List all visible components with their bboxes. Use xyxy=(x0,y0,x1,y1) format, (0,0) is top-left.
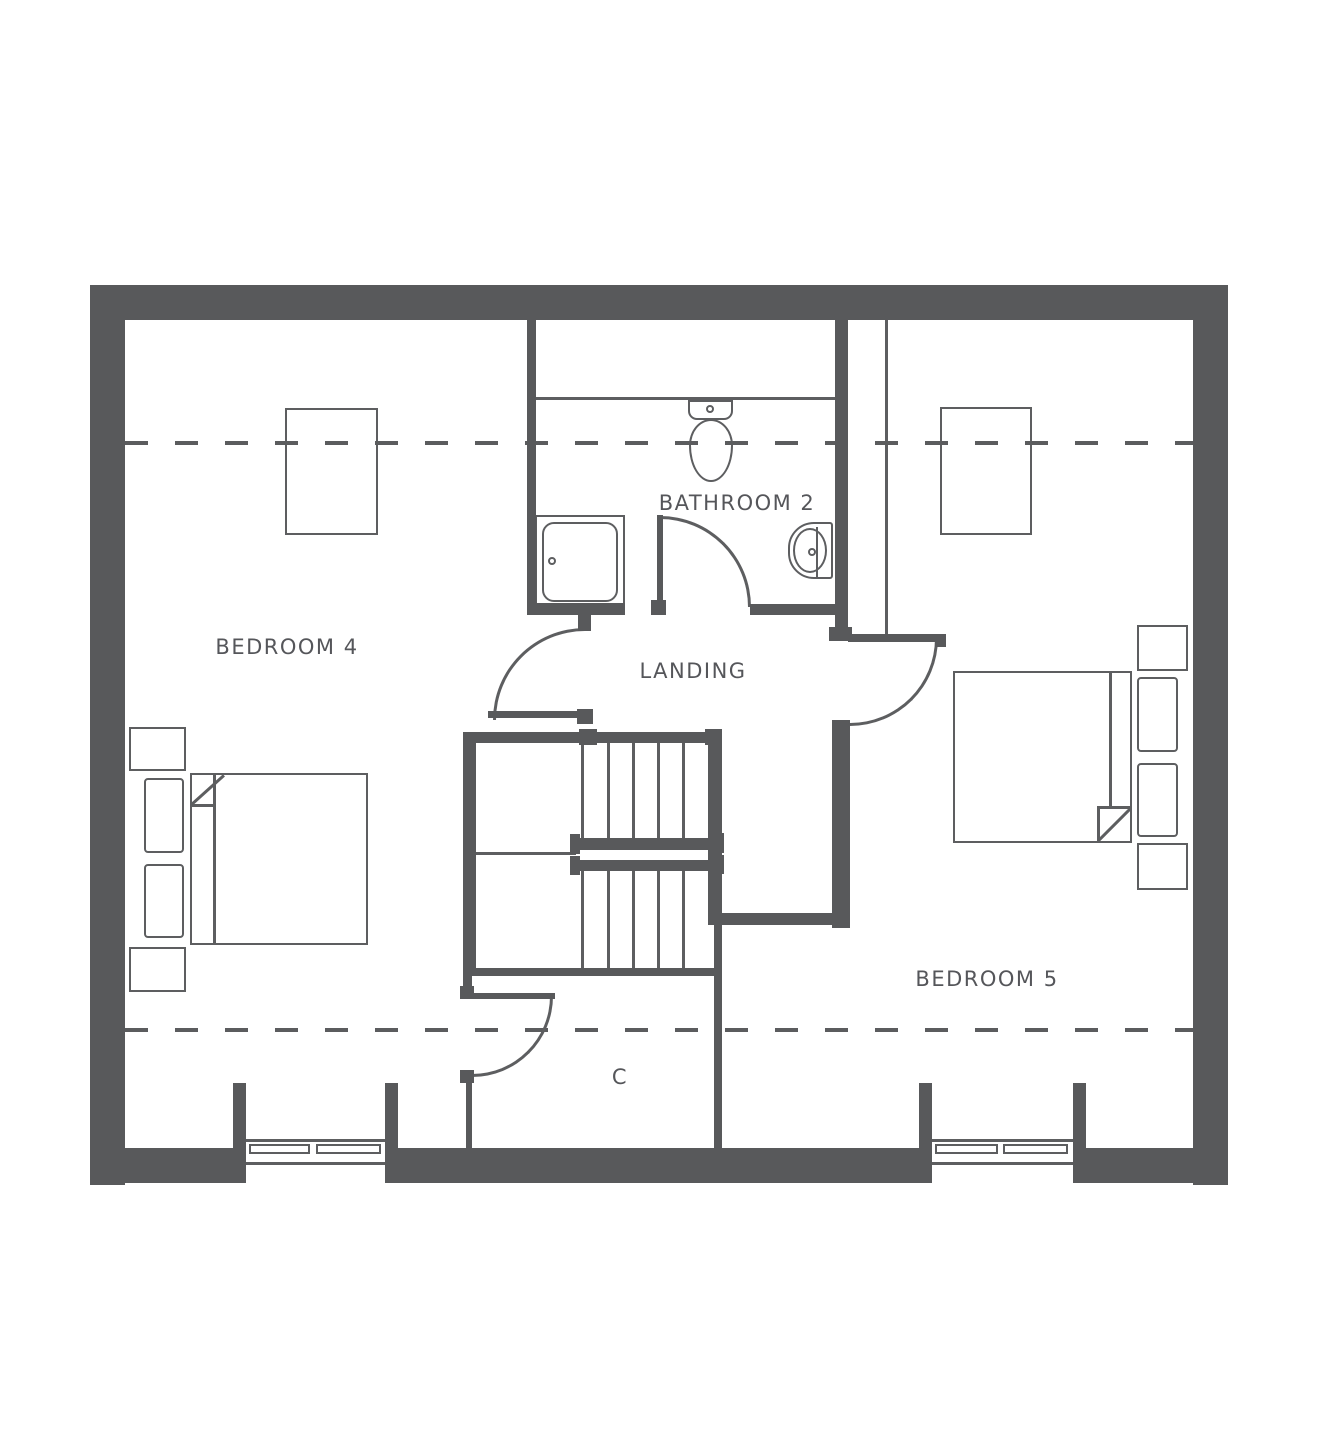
bed-bedroom5 xyxy=(953,671,1132,843)
stair-tread-line xyxy=(682,743,685,838)
stair-tread-line xyxy=(581,743,584,838)
stair-wall-left xyxy=(463,732,476,975)
shower-drain xyxy=(548,557,556,565)
bedroom5-recess-line xyxy=(885,320,888,638)
window-bedroom5-pane xyxy=(935,1144,998,1154)
bedroom4-door-jamb-top xyxy=(578,612,591,631)
window-pier xyxy=(385,1083,398,1149)
bedroom5-door-jamb xyxy=(935,634,946,647)
pillow-bedroom5-top xyxy=(1137,677,1178,752)
bathroom-wall-bottom-left xyxy=(527,603,625,615)
bedroom4-door-hinge-node xyxy=(577,709,593,724)
bed-bedroom5-sheet-line xyxy=(1109,673,1112,808)
stair-wall-node xyxy=(579,729,597,745)
window-bedroom5-pane xyxy=(1003,1144,1068,1154)
stair-wall-right xyxy=(708,732,722,925)
room-label-landing: LANDING xyxy=(639,659,746,683)
window-bedroom5-frame-line xyxy=(932,1139,1073,1142)
door-swing-arc-cupboard xyxy=(472,996,553,1077)
bathroom-fixture-line xyxy=(536,397,835,400)
room-label-bathroom2: BATHROOM 2 xyxy=(659,491,816,515)
stair-wall-bottom xyxy=(463,968,717,976)
stair-rail-cap xyxy=(570,834,580,854)
stair-tread-line xyxy=(632,743,635,838)
stair-center-rail-upper xyxy=(576,838,722,850)
window-pier xyxy=(1073,1083,1086,1149)
bedroom5-door-leaf xyxy=(848,634,940,642)
bed-bedroom4 xyxy=(190,773,368,945)
window-bedroom4-frame-line xyxy=(246,1139,385,1142)
window-bedroom4-pane xyxy=(249,1144,310,1154)
cupboard-door-leaf xyxy=(472,993,555,999)
wardrobe-bedroom5 xyxy=(940,407,1032,535)
nightstand-bedroom4-bottom xyxy=(129,947,186,992)
outer-wall-top xyxy=(90,285,1228,320)
outer-wall-right xyxy=(1193,285,1228,1185)
outer-wall-bottom-right xyxy=(1073,1148,1193,1183)
bedroom5-wall-west xyxy=(832,720,850,928)
eaves-dashed-line-upper xyxy=(125,441,1193,445)
stair-rail-cap xyxy=(570,856,580,875)
bathroom-wall-right xyxy=(835,320,848,630)
bathroom-wall-bottom-right xyxy=(750,604,848,615)
floor-plan: BEDROOM 4 BATHROOM 2 LANDING BEDROOM 5 C xyxy=(0,0,1318,1455)
door-swing-arc-bedroom5 xyxy=(850,638,938,726)
room-label-bedroom4: BEDROOM 4 xyxy=(215,635,358,659)
bed-bedroom5-fold-line-h xyxy=(1097,806,1132,809)
stair-center-rail-lower xyxy=(576,860,722,871)
outer-wall-left xyxy=(90,285,125,1185)
pillow-bedroom4-top xyxy=(144,778,184,853)
stair-tread-line xyxy=(632,871,635,968)
door-swing-arc-bedroom4 xyxy=(493,628,585,720)
pillow-bedroom5-bottom xyxy=(1137,763,1178,837)
cupboard-wall-lower xyxy=(466,1078,472,1148)
window-bedroom4-sill-line xyxy=(246,1162,385,1165)
window-bedroom4-pane xyxy=(316,1144,381,1154)
bathroom-door-leaf xyxy=(657,515,663,603)
outer-wall-bottom-left xyxy=(125,1148,246,1183)
outer-wall-bottom-center xyxy=(385,1148,932,1183)
window-pier xyxy=(233,1083,246,1149)
landing-wall-bottom xyxy=(715,913,848,925)
bathroom-wall-left xyxy=(527,320,536,612)
bed-bedroom4-sheet-line xyxy=(213,775,216,943)
eaves-dashed-line-lower xyxy=(125,1028,1193,1032)
nightstand-bedroom4-top xyxy=(129,727,186,771)
window-bedroom5-sill-line xyxy=(932,1162,1073,1165)
wash-basin-tap xyxy=(808,548,816,556)
toilet-flush-button xyxy=(706,405,714,413)
stair-tread-line xyxy=(581,871,584,968)
toilet-bowl xyxy=(689,419,733,482)
cupboard-wall-right xyxy=(714,925,722,1148)
stair-tread-line xyxy=(657,871,660,968)
wash-basin-edge-line xyxy=(816,527,818,577)
stair-tread-line xyxy=(607,871,610,968)
stair-tread-line xyxy=(682,871,685,968)
stair-half-landing-line xyxy=(476,852,576,855)
door-swing-arc-bathroom2 xyxy=(660,516,751,607)
nightstand-bedroom5-top xyxy=(1137,625,1188,671)
bedroom4-door-leaf xyxy=(488,711,585,718)
stair-tread-line xyxy=(607,743,610,838)
room-label-cupboard: C xyxy=(612,1065,628,1089)
nightstand-bedroom5-bottom xyxy=(1137,843,1188,890)
bed-bedroom4-fold-line xyxy=(190,804,214,807)
window-pier xyxy=(919,1083,932,1149)
room-label-bedroom5: BEDROOM 5 xyxy=(915,967,1058,991)
stair-tread-line xyxy=(657,743,660,838)
pillow-bedroom4-bottom xyxy=(144,864,184,938)
wardrobe-bedroom4 xyxy=(285,408,378,535)
